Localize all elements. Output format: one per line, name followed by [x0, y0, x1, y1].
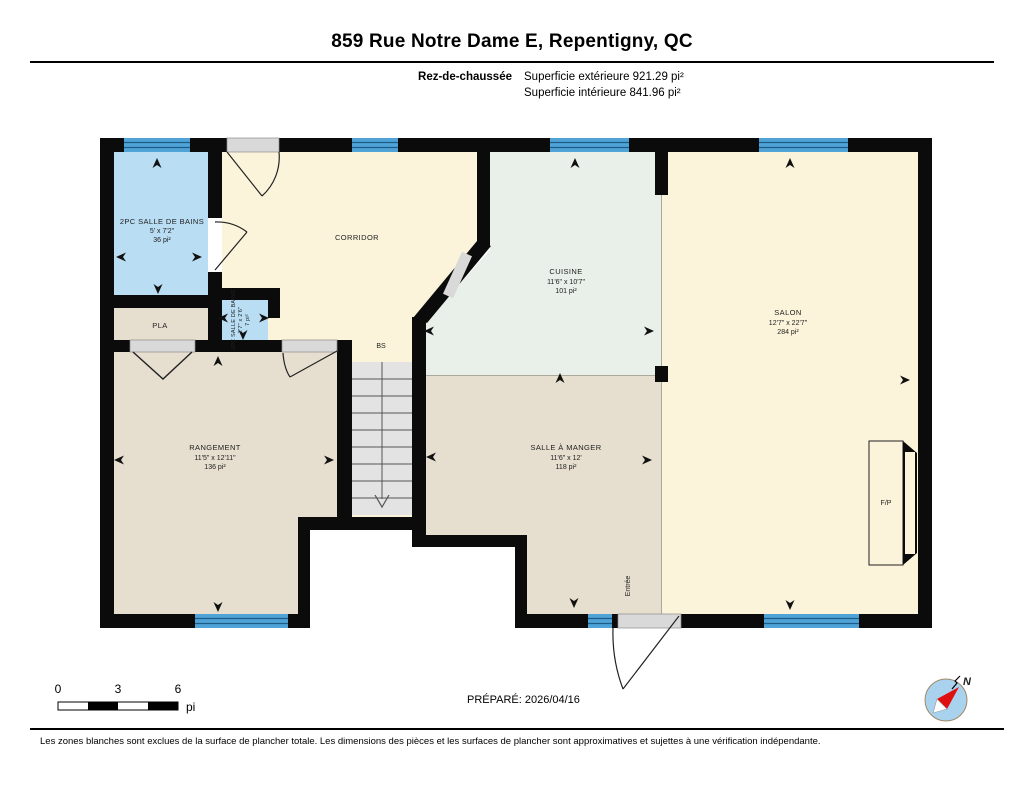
floor-plan: F/P 2PC SALLE DE BAINS 5' x 7'2" 36 pi² … — [0, 0, 1024, 791]
front-door-opening — [227, 138, 279, 152]
small-bathroom-area: 7 pi² — [245, 314, 251, 326]
rangement-label: RANGEMENT — [189, 443, 241, 452]
salle-a-manger-label: SALLE À MANGER — [530, 443, 601, 452]
prepared-date: PRÉPARÉ: 2026/04/16 — [467, 694, 580, 706]
bs-label: BS — [376, 343, 386, 350]
bathroom-area: 36 pi² — [153, 237, 171, 244]
scale-tick-0: 0 — [55, 682, 62, 696]
corridor-label: CORRIDOR — [335, 233, 379, 242]
pla-label: PLA — [152, 321, 167, 330]
stairs — [352, 362, 412, 515]
salle-a-manger-dims: 11'6" x 12' — [550, 455, 582, 462]
rangement-area: 136 pi² — [204, 464, 226, 471]
cuisine-dims: 11'6" x 10'7" — [547, 279, 585, 286]
entree-label: Entrée — [625, 576, 632, 597]
salon-label: SALON — [774, 308, 801, 317]
scale-tick-6: 6 — [175, 682, 182, 696]
footer-divider — [30, 728, 1004, 730]
scale-unit: pi — [186, 700, 195, 714]
footer-disclaimer: Les zones blanches sont exclues de la su… — [40, 736, 990, 747]
compass-north-label: N — [963, 676, 972, 688]
salon-dims: 12'7" x 22'7" — [769, 320, 808, 327]
salle-a-manger-area: 118 pi² — [556, 464, 578, 471]
cuisine-label: CUISINE — [549, 267, 582, 276]
compass: N — [925, 676, 972, 721]
small-bathroom-dims: 2'7" x 2'6" — [238, 307, 244, 333]
scale-bar: 0 3 6 pi — [55, 682, 196, 714]
cuisine-area: 101 pi² — [555, 288, 577, 295]
bathroom-label: 2PC SALLE DE BAINS — [120, 217, 204, 226]
bathroom-dims: 5' x 7'2" — [150, 228, 175, 235]
scale-tick-3: 3 — [115, 682, 122, 696]
small-bathroom-label: 2PC SALLE DE BAINS — [231, 290, 237, 350]
fireplace: F/P — [869, 441, 917, 565]
rangement-dims: 11'5" x 12'11" — [194, 455, 236, 462]
fireplace-label: F/P — [881, 500, 892, 507]
salon-area: 284 pi² — [777, 329, 799, 336]
